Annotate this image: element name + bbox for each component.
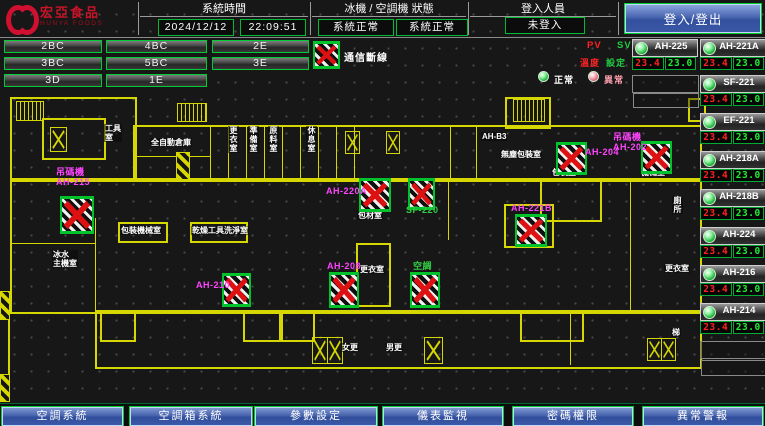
wall bbox=[95, 310, 702, 369]
wall-partition bbox=[300, 127, 301, 178]
sv-value[interactable]: 23.0 bbox=[733, 93, 765, 106]
wall bbox=[100, 312, 136, 342]
pv-sv-values: 23.423.0 bbox=[700, 93, 764, 106]
system-time-label: 系統時間 bbox=[140, 2, 308, 17]
pv-sv-values: 23.423.0 bbox=[700, 57, 764, 70]
status-led-icon bbox=[703, 268, 716, 281]
wall-partition bbox=[264, 127, 265, 178]
wall-partition bbox=[630, 178, 631, 310]
room-label: 冰水 主機室 bbox=[52, 250, 78, 268]
sv-caption-cn: 設定 bbox=[606, 56, 626, 69]
equipment-label: AH-220A bbox=[326, 187, 367, 197]
comm-loss-marker[interactable] bbox=[556, 142, 587, 175]
header-divider bbox=[310, 2, 311, 35]
wall-partition bbox=[476, 127, 477, 178]
sv-value[interactable]: 23.0 bbox=[733, 131, 765, 144]
wall-partition bbox=[10, 243, 95, 244]
ahu-button-ah-221a[interactable]: AH-221A bbox=[700, 39, 765, 57]
abnormal-led-icon bbox=[588, 71, 599, 82]
room-label: 女更 bbox=[341, 343, 359, 352]
sv-value[interactable]: 23.0 bbox=[733, 169, 765, 182]
status-led-icon bbox=[703, 116, 716, 129]
room-label: 更衣室 bbox=[664, 264, 690, 273]
comm-loss-marker[interactable] bbox=[60, 196, 94, 234]
ahu-button-ah-216[interactable]: AH-216 bbox=[700, 265, 765, 283]
sv-value[interactable]: 23.0 bbox=[733, 245, 765, 258]
comm-loss-legend-icon bbox=[313, 41, 340, 69]
wall bbox=[243, 312, 281, 342]
wall-partition bbox=[95, 218, 96, 310]
equipment-label: 吊碼機 AH-202 bbox=[613, 133, 647, 152]
pv-value: 23.4 bbox=[700, 321, 732, 334]
ahu-name: AH-225 bbox=[645, 40, 697, 54]
ahu-name: EF-221 bbox=[713, 114, 765, 128]
room-label: 準備室 bbox=[248, 126, 259, 153]
pv-value: 23.4 bbox=[700, 57, 732, 70]
wall-partition bbox=[133, 156, 210, 157]
floor-button-3bc[interactable]: 3BC bbox=[4, 57, 102, 70]
normal-led-icon bbox=[538, 71, 549, 82]
ahu-name: SF-221 bbox=[713, 76, 765, 90]
elevator-icon bbox=[345, 131, 360, 154]
sv-caption: SV bbox=[617, 40, 632, 51]
wall-partition bbox=[450, 127, 451, 178]
stairs-icon bbox=[513, 99, 545, 122]
wall-partition bbox=[318, 127, 319, 178]
pv-value: 23.4 bbox=[700, 245, 732, 258]
pv-value: 23.4 bbox=[700, 169, 732, 182]
ahu-name: AH-218A bbox=[713, 152, 765, 166]
wall-partition bbox=[336, 127, 337, 178]
header-divider bbox=[468, 2, 469, 35]
status-led-icon bbox=[703, 154, 716, 167]
pv-value: 23.4 bbox=[700, 93, 732, 106]
ahu-name: AH-218B bbox=[713, 190, 765, 204]
pv-sv-values: 23.423.0 bbox=[700, 321, 764, 334]
floor-button-3d[interactable]: 3D bbox=[4, 74, 102, 87]
sv-value[interactable]: 23.0 bbox=[733, 283, 765, 296]
ahu-button-ah-214[interactable]: AH-214 bbox=[700, 303, 765, 321]
pv-sv-values: 23.423.0 bbox=[700, 169, 764, 182]
hatch-strip bbox=[0, 291, 10, 320]
equipment-label: SF-220 bbox=[406, 206, 439, 216]
pv-value: 23.4 bbox=[632, 57, 664, 70]
equipment-label: AH-208 bbox=[327, 262, 361, 272]
ahu-button-ah-224[interactable]: AH-224 bbox=[700, 227, 765, 245]
elevator-icon bbox=[647, 338, 662, 361]
normal-legend-label: 正常 bbox=[554, 73, 574, 86]
hatch-strip bbox=[0, 374, 10, 402]
room-label: 男更 bbox=[385, 343, 403, 352]
wall-partition bbox=[448, 178, 449, 240]
pv-value: 23.4 bbox=[700, 283, 732, 296]
elevator-icon bbox=[50, 127, 67, 152]
ahu-button-ah-218a[interactable]: AH-218A bbox=[700, 151, 765, 169]
brand-logo-icon bbox=[6, 3, 36, 31]
room-label: 更衣室 bbox=[228, 126, 239, 153]
login-logout-button[interactable]: 登入/登出 bbox=[625, 4, 761, 33]
room-label: 工具 室 bbox=[104, 124, 122, 142]
empty-slot bbox=[700, 341, 765, 359]
status-led-icon bbox=[703, 230, 716, 243]
elevator-icon bbox=[661, 338, 676, 361]
equipment-label: 吊碼機 AH-215 bbox=[56, 168, 90, 187]
wall-partition bbox=[570, 312, 571, 365]
floor-button-4bc[interactable]: 4BC bbox=[106, 40, 207, 53]
empty-slot bbox=[701, 360, 765, 376]
room-label: 全自動倉庫 bbox=[150, 138, 192, 147]
stairs-icon bbox=[177, 103, 207, 122]
hatch-strip bbox=[176, 152, 190, 180]
pv-sv-values: 23.423.0 bbox=[700, 283, 764, 296]
ahu-name: AH-214 bbox=[713, 304, 765, 318]
brand-name: 宏亞食品 bbox=[40, 6, 103, 20]
sv-value[interactable]: 23.0 bbox=[733, 207, 765, 220]
room-label: 梯 bbox=[671, 328, 681, 337]
login-user-label: 登入人員 bbox=[470, 2, 616, 17]
room-label: AH-B3 bbox=[481, 132, 507, 141]
room-label: 廁所 bbox=[672, 196, 683, 214]
abnormal-legend-label: 異常 bbox=[604, 73, 624, 86]
system-date-value: 2024/12/12 bbox=[158, 19, 234, 36]
room-label: 原料室 bbox=[268, 126, 279, 153]
pv-caption: PV bbox=[587, 40, 602, 51]
wall-partition bbox=[210, 127, 211, 178]
header-divider bbox=[138, 2, 139, 35]
sv-value[interactable]: 23.0 bbox=[665, 57, 697, 70]
room-label: 更衣室 bbox=[359, 265, 385, 274]
status-led-icon bbox=[703, 306, 716, 319]
elevator-icon bbox=[424, 337, 443, 364]
ahu-button-ah-225[interactable]: AH-225 bbox=[632, 39, 698, 57]
system-time-value: 22:09:51 bbox=[240, 19, 306, 36]
nav-ahu-box-system[interactable]: 空調箱系統 bbox=[130, 407, 252, 426]
pv-sv-values: 23.423.0 bbox=[700, 131, 764, 144]
wall bbox=[356, 243, 391, 307]
equipment-label: 空調 bbox=[413, 262, 432, 272]
ahu-name: AH-216 bbox=[713, 266, 765, 280]
empty-slot bbox=[632, 75, 699, 93]
status-led-icon bbox=[635, 42, 648, 55]
chiller-status: 系統正常 bbox=[318, 19, 394, 36]
ahu-name: AH-224 bbox=[713, 228, 765, 242]
ahu-button-sf-221[interactable]: SF-221 bbox=[700, 75, 765, 93]
status-led-icon bbox=[703, 42, 716, 55]
floor-button-3e[interactable]: 3E bbox=[212, 57, 309, 70]
machine-status-label: 冰機 / 空調機 狀態 bbox=[312, 2, 466, 17]
pv-value: 23.4 bbox=[700, 207, 732, 220]
header-divider bbox=[618, 2, 619, 35]
sv-value[interactable]: 23.0 bbox=[733, 57, 765, 70]
comm-loss-marker[interactable] bbox=[329, 272, 359, 308]
room-label: 包裝機械室 bbox=[120, 226, 162, 235]
stairs-icon bbox=[16, 101, 44, 121]
floor-button-5bc[interactable]: 5BC bbox=[106, 57, 207, 70]
room-label: 無塵包裝室 bbox=[500, 150, 542, 159]
bottom-nav-bar: 空調系統 空調箱系統 參數設定 儀表監視 密碼權限 異常警報 bbox=[0, 403, 765, 426]
room-label: 休息室 bbox=[306, 126, 317, 153]
nav-ac-system[interactable]: 空調系統 bbox=[2, 407, 123, 426]
floorplan: 吊碼機 AH-215AH-210AH-208空調AH-220ASF-220AH-… bbox=[0, 92, 765, 402]
login-user-value: 未登入 bbox=[505, 17, 585, 34]
floor-button-2e[interactable]: 2E bbox=[212, 40, 309, 53]
wall-partition bbox=[246, 127, 247, 178]
elevator-icon bbox=[386, 131, 400, 154]
empty-slot bbox=[633, 93, 699, 108]
wall bbox=[281, 312, 315, 342]
header: 宏亞食品 HUNYA FOODS 系統時間 2024/12/12 22:09:5… bbox=[0, 0, 765, 38]
sv-value[interactable]: 23.0 bbox=[733, 321, 765, 334]
ahu-status: 系統正常 bbox=[396, 19, 468, 36]
status-led-icon bbox=[703, 78, 716, 91]
comm-loss-marker[interactable] bbox=[515, 214, 547, 247]
ahu-name: AH-221A bbox=[713, 40, 765, 54]
floor-button-2bc[interactable]: 2BC bbox=[4, 40, 102, 53]
comm-loss-marker[interactable] bbox=[410, 272, 440, 308]
status-led-icon bbox=[703, 192, 716, 205]
equipment-label: AH-210 bbox=[196, 281, 230, 291]
ahu-button-ah-218b[interactable]: AH-218B bbox=[700, 189, 765, 207]
pv-sv-values: 23.423.0 bbox=[632, 57, 696, 70]
equipment-label: AH-221B bbox=[511, 204, 552, 214]
brand-name-en: HUNYA FOODS bbox=[40, 20, 103, 28]
elevator-icon bbox=[312, 337, 328, 364]
pv-sv-values: 23.423.0 bbox=[700, 207, 764, 220]
wall bbox=[520, 312, 584, 342]
pv-sv-values: 23.423.0 bbox=[700, 245, 764, 258]
pv-value: 23.4 bbox=[700, 131, 732, 144]
nav-abnormal-alarm[interactable]: 異常警報 bbox=[643, 407, 763, 426]
pv-caption-cn: 溫度 bbox=[580, 56, 600, 69]
ahu-button-ef-221[interactable]: EF-221 bbox=[700, 113, 765, 131]
comm-loss-legend-label: 通信斷線 bbox=[344, 49, 388, 64]
nav-parameter-settings[interactable]: 參數設定 bbox=[255, 407, 377, 426]
nav-meter-monitoring[interactable]: 儀表監視 bbox=[383, 407, 503, 426]
nav-password-authority[interactable]: 密碼權限 bbox=[513, 407, 633, 426]
logo: 宏亞食品 HUNYA FOODS bbox=[6, 3, 103, 31]
room-label: 乾燥工具洗淨室 bbox=[191, 226, 249, 235]
hmi-screen: 宏亞食品 HUNYA FOODS 系統時間 2024/12/12 22:09:5… bbox=[0, 0, 765, 426]
floor-button-1e[interactable]: 1E bbox=[106, 74, 207, 87]
wall-partition bbox=[282, 127, 283, 178]
